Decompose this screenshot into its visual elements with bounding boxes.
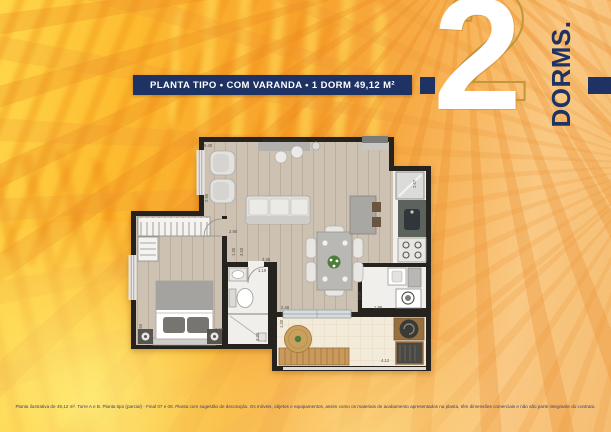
kitchen-island [350, 196, 381, 234]
dimension-label: 2.50 [215, 327, 224, 332]
disclaimer-text: Planta ilustrativa de 49,12 m². Torre A … [0, 404, 611, 409]
balcony-sliding-door [283, 310, 351, 318]
laundry-sink [388, 268, 406, 285]
dimension-label: 5.40 [204, 143, 213, 148]
laundry-cabinet [408, 268, 421, 287]
washing-machine [396, 289, 421, 308]
living-window [197, 150, 205, 195]
page: PLANTA TIPO • COM VARANDA • 1 DORM 49,12… [0, 0, 611, 432]
decorative-dash-left [420, 77, 435, 94]
dorms-count-number: 2 [433, 0, 522, 134]
plan-title-banner: PLANTA TIPO • COM VARANDA • 1 DORM 49,12… [133, 75, 412, 95]
dorms-label: DORMS. [546, 4, 576, 144]
dimension-label: 2.67 [412, 179, 417, 188]
sofa [246, 196, 310, 224]
dimension-label: 2.24 [255, 332, 260, 341]
dimension-label: 1.99 [374, 305, 383, 310]
bedroom-window [129, 255, 137, 300]
dimension-label: 1.30 [279, 319, 284, 328]
dimension-label: 1.19 [258, 268, 267, 273]
stove [398, 238, 426, 262]
dimension-label: 3.60 [138, 323, 143, 332]
plan-title-text: PLANTA TIPO • COM VARANDA • 1 DORM 49,12… [150, 80, 395, 91]
dimension-label: 3.50 [239, 247, 244, 256]
kitchen-counter-sink [398, 200, 426, 237]
dimension-label: 2.90 [229, 229, 238, 234]
dimension-label: 1.35 [231, 247, 236, 256]
balcony-railing [283, 367, 426, 370]
table-plant [328, 256, 341, 269]
dimension-label: 3.35 [262, 257, 271, 262]
floorplan: 5.40 2.90 2.90 1.35 3.50 3.35 1.19 2.46 … [125, 132, 437, 377]
entry-door [362, 136, 388, 150]
toilet [229, 289, 253, 308]
dimension-label: 2.46 [281, 305, 290, 310]
balcony-table [285, 326, 312, 353]
deck-bench [279, 348, 349, 365]
armchair-top [210, 151, 235, 175]
fridge [396, 172, 424, 199]
dimension-label: 2.90 [204, 193, 209, 202]
double-bed [153, 281, 216, 345]
dimension-label: 4.12 [381, 358, 390, 363]
bathroom-sink [229, 268, 247, 281]
dorms-count-badge: 2 2 [433, 0, 563, 149]
decorative-dash-right [588, 77, 611, 94]
armchair-bottom [210, 179, 235, 203]
dimension-label: 4.05 [357, 291, 362, 300]
